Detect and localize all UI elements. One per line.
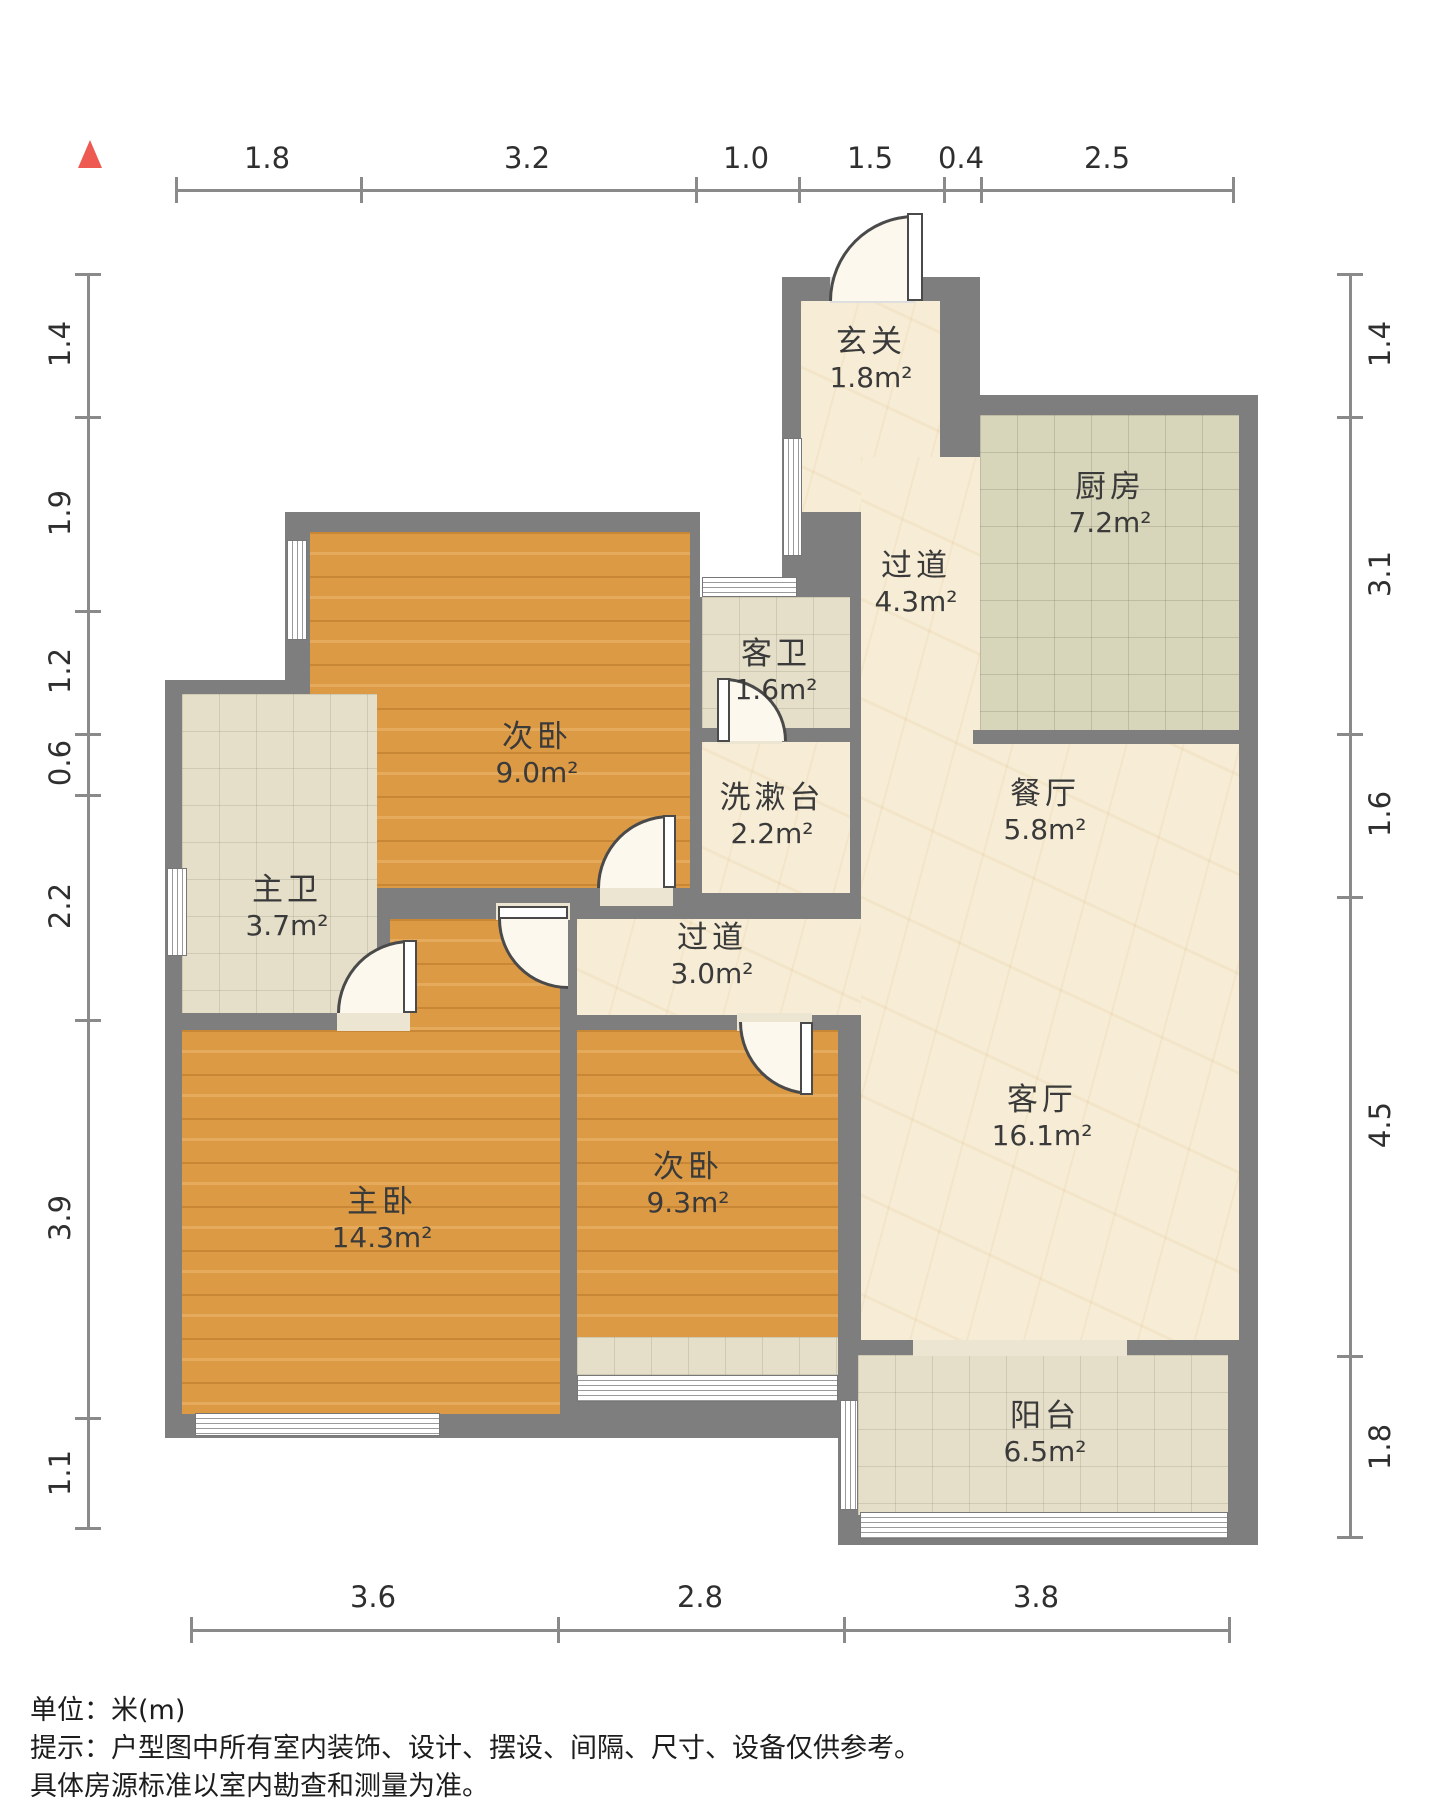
footer-unit-note: 单位：米(m) bbox=[30, 1688, 185, 1727]
bay-window bbox=[577, 1375, 838, 1402]
dimension-label: 3.9 bbox=[43, 1195, 77, 1241]
balcony-opening bbox=[913, 1340, 1127, 1356]
dimension-label: 4.5 bbox=[1363, 1102, 1397, 1148]
dimension-label: 0.6 bbox=[43, 740, 77, 786]
dimension-label: 1.4 bbox=[1363, 321, 1397, 367]
window bbox=[195, 1413, 440, 1436]
entry-door-arc bbox=[829, 215, 915, 301]
bedroom3-door-leaf bbox=[800, 1022, 813, 1095]
dimension-label: 1.4 bbox=[43, 321, 77, 367]
entry-door-leaf bbox=[907, 213, 923, 301]
room-label-canting: 餐厅 5.8m² bbox=[1003, 777, 1086, 847]
north-arrow-icon bbox=[78, 140, 102, 168]
dimension-label: 1.9 bbox=[43, 490, 77, 536]
window bbox=[702, 577, 797, 597]
wall bbox=[973, 730, 1239, 744]
room-label-xishutai: 洗漱台 2.2m² bbox=[720, 781, 825, 851]
bedroom2-door-opening bbox=[600, 886, 673, 906]
dimension-label: 1.0 bbox=[723, 141, 769, 175]
room-label-kewei: 客卫 1.6m² bbox=[734, 637, 817, 707]
dimension-label: 3.1 bbox=[1363, 551, 1397, 597]
footer-tip-note: 提示：户型图中所有室内装饰、设计、摆设、间隔、尺寸、设备仅供参考。 bbox=[30, 1726, 921, 1765]
dimension-label: 1.5 bbox=[847, 141, 893, 175]
dimension-label: 1.8 bbox=[244, 141, 290, 175]
dimension-label: 2.8 bbox=[677, 1580, 723, 1614]
room-label-keting: 客厅 16.1m² bbox=[992, 1083, 1093, 1153]
room-label-zhuwo: 主卧 14.3m² bbox=[332, 1185, 433, 1255]
master-bedroom-door-leaf bbox=[498, 906, 568, 919]
balcony-side-window bbox=[840, 1400, 858, 1510]
dimension-label: 1.8 bbox=[1363, 1424, 1397, 1470]
balcony-window bbox=[860, 1512, 1228, 1539]
bedroom2-door-leaf bbox=[663, 815, 676, 888]
room-label-guodao-n: 过道 4.3m² bbox=[874, 549, 957, 619]
room-label-zhuwei: 主卫 3.7m² bbox=[245, 873, 328, 943]
footer-tip-note-2: 具体房源标准以室内勘查和测量为准。 bbox=[30, 1764, 489, 1803]
window bbox=[287, 540, 307, 640]
bay-window-ledge bbox=[577, 1337, 838, 1375]
master-bath-door-leaf bbox=[403, 940, 417, 1013]
room-master-bath-floor bbox=[182, 694, 377, 1013]
dimension-label: 0.4 bbox=[938, 141, 984, 175]
dimension-label: 3.6 bbox=[350, 1580, 396, 1614]
dimension-label: 2.5 bbox=[1084, 141, 1130, 175]
room-label-xuanguan: 玄关 1.8m² bbox=[829, 325, 912, 395]
room-label-guodao-m: 过道 3.0m² bbox=[670, 921, 753, 991]
dimension-label: 1.2 bbox=[43, 648, 77, 694]
floor-plan-page: 玄关 1.8m² 过道 4.3m² 厨房 7.2m² 客卫 1.6m² 次卧 9… bbox=[0, 0, 1441, 1818]
dimension-label: 3.8 bbox=[1013, 1580, 1059, 1614]
master-bath-door-opening bbox=[337, 1011, 410, 1031]
window bbox=[783, 438, 802, 556]
room-label-ciwo-n: 次卧 9.0m² bbox=[495, 720, 578, 790]
room-label-yangtai: 阳台 6.5m² bbox=[1003, 1399, 1086, 1469]
dimension-label: 1.6 bbox=[1363, 791, 1397, 837]
room-label-chufang: 厨房 7.2m² bbox=[1068, 470, 1151, 540]
guest-bath-door-leaf bbox=[717, 678, 730, 742]
room-label-ciwo-s: 次卧 9.3m² bbox=[646, 1150, 729, 1220]
room-kitchen-floor bbox=[980, 415, 1239, 730]
dimension-label: 1.1 bbox=[43, 1450, 77, 1496]
window bbox=[167, 868, 187, 956]
dimension-label: 3.2 bbox=[504, 141, 550, 175]
dimension-label: 2.2 bbox=[43, 883, 77, 929]
